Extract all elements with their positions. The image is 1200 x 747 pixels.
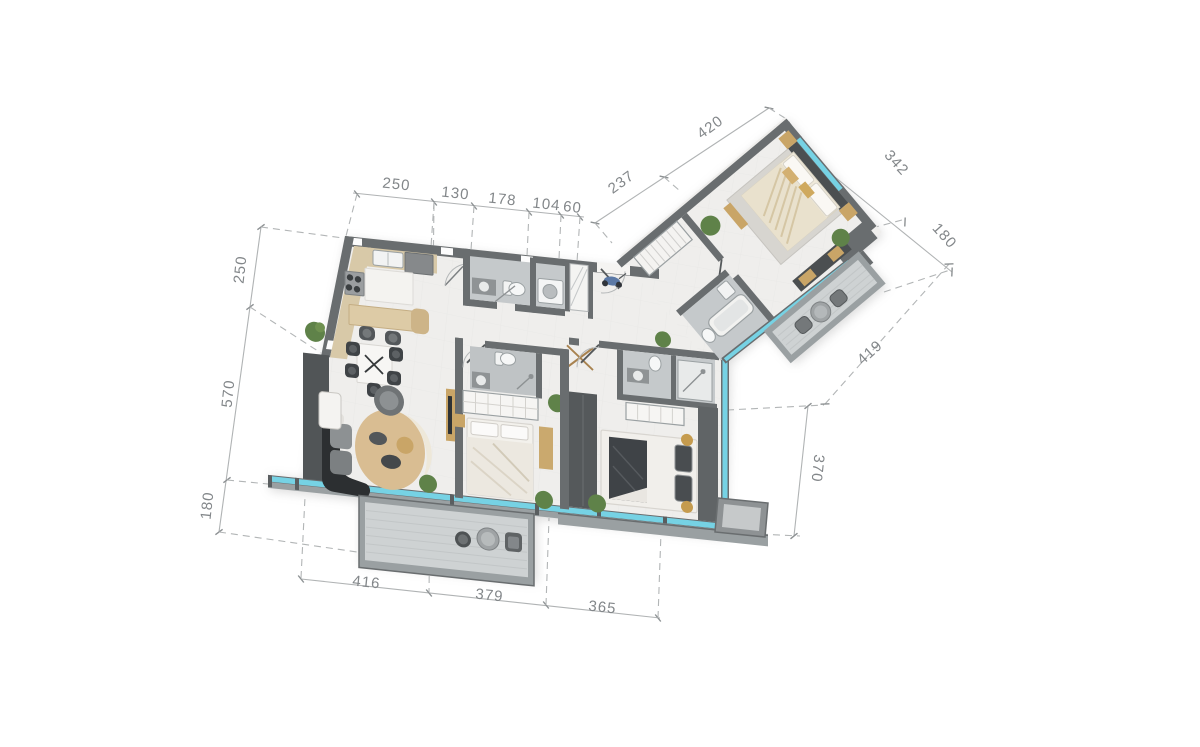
- svg-text:379: 379: [475, 586, 505, 606]
- svg-text:60: 60: [562, 198, 582, 217]
- svg-text:178: 178: [488, 190, 518, 210]
- svg-text:104: 104: [532, 195, 562, 215]
- svg-text:250: 250: [231, 255, 251, 285]
- svg-text:130: 130: [441, 184, 471, 204]
- svg-text:250: 250: [382, 175, 412, 195]
- svg-text:570: 570: [219, 379, 239, 409]
- svg-text:370: 370: [808, 454, 828, 484]
- svg-text:365: 365: [588, 598, 618, 618]
- svg-text:180: 180: [198, 491, 218, 521]
- svg-text:416: 416: [352, 573, 382, 593]
